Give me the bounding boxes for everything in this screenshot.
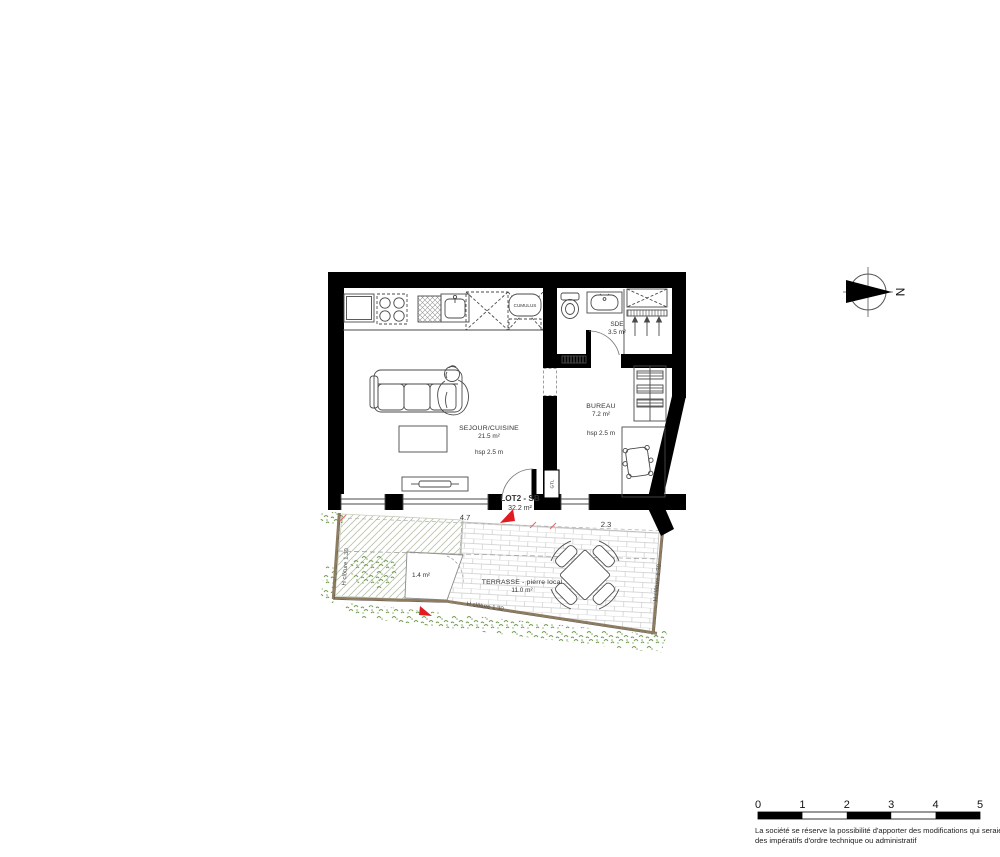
dim-sejour-width: 4.7 — [460, 513, 471, 522]
scale-1: 1 — [799, 799, 805, 811]
disclaimer-line1: La société se réserve la possibilité d'a… — [755, 826, 1000, 835]
sejour-area-label: 21.5 m² — [478, 433, 500, 440]
scale-0: 0 — [755, 799, 761, 811]
oven-icon — [418, 296, 441, 322]
radiator-icon — [562, 356, 586, 363]
wardrobe-icon — [634, 366, 666, 421]
wall-top — [328, 272, 686, 288]
person-figure — [438, 366, 469, 415]
floor-plan-svg: H clôture 1.30 H clôture 1.30 H clôture … — [0, 0, 1000, 857]
toilet-icon — [561, 293, 579, 319]
floor-plan-page: H clôture 1.30 H clôture 1.30 H clôture … — [0, 0, 1000, 857]
sofa-icon — [370, 370, 462, 412]
scale-4: 4 — [933, 799, 939, 811]
scale-3: 3 — [888, 799, 894, 811]
closet-icon — [627, 289, 667, 336]
disclaimer: La société se réserve la possibilité d'a… — [755, 826, 1000, 845]
sejour-height-label: hsp 2.5 m — [475, 449, 503, 456]
sejour-furniture — [370, 366, 469, 491]
hanger-arrows — [633, 317, 662, 336]
terrasse-label: TERRASSE - pierre local — [482, 579, 563, 586]
washbasin-icon — [587, 292, 622, 313]
lot-area-label: 32.2 m² — [508, 505, 532, 512]
water-heater — [509, 294, 541, 330]
wall-middle-upper — [543, 288, 557, 370]
fridge-icon — [344, 294, 374, 322]
sde-area-label: 3.5 m² — [608, 329, 626, 336]
north-arrow-icon — [846, 280, 892, 303]
desk-chair-icon — [621, 445, 655, 479]
terrace-paving — [447, 522, 659, 632]
bureau-height-label: hsp 2.5 m — [587, 430, 615, 437]
garden-entrance-arrow-icon — [419, 606, 432, 616]
garden-plot-area-label: 1.4 m² — [412, 572, 430, 579]
kitchen — [343, 292, 543, 330]
scale-5: 5 — [977, 799, 983, 811]
scale-bar: 0 1 2 3 4 5 — [755, 799, 983, 819]
terrace-area: H clôture 1.30 H clôture 1.30 H clôture … — [320, 509, 669, 653]
sejour-label: SEJOUR/CUISINE — [459, 425, 519, 432]
compass: N — [843, 267, 907, 317]
disclaimer-line2: des impératifs d'ordre technique ou admi… — [755, 836, 917, 845]
sde-label: SDE — [610, 321, 623, 328]
north-label: N — [893, 288, 907, 297]
bureau-area-label: 7.2 m² — [592, 411, 610, 418]
lot-id-label: LOT2 - SB — [500, 494, 540, 503]
scale-2: 2 — [844, 799, 850, 811]
bureau-label: BUREAU — [586, 403, 616, 410]
dim-bureau-width: 2.3 — [601, 520, 612, 529]
wall-right-upper — [672, 288, 686, 398]
cooktop-icon — [377, 294, 407, 324]
sink-icon — [441, 294, 469, 322]
coffee-table-icon — [399, 426, 447, 452]
gtl-label: GTL — [550, 479, 555, 488]
wall-left — [328, 272, 344, 510]
cumulus-label: CUMULUS — [514, 303, 537, 308]
terrasse-area-label: 11.0 m² — [511, 587, 532, 594]
tv-unit-icon — [402, 477, 468, 491]
